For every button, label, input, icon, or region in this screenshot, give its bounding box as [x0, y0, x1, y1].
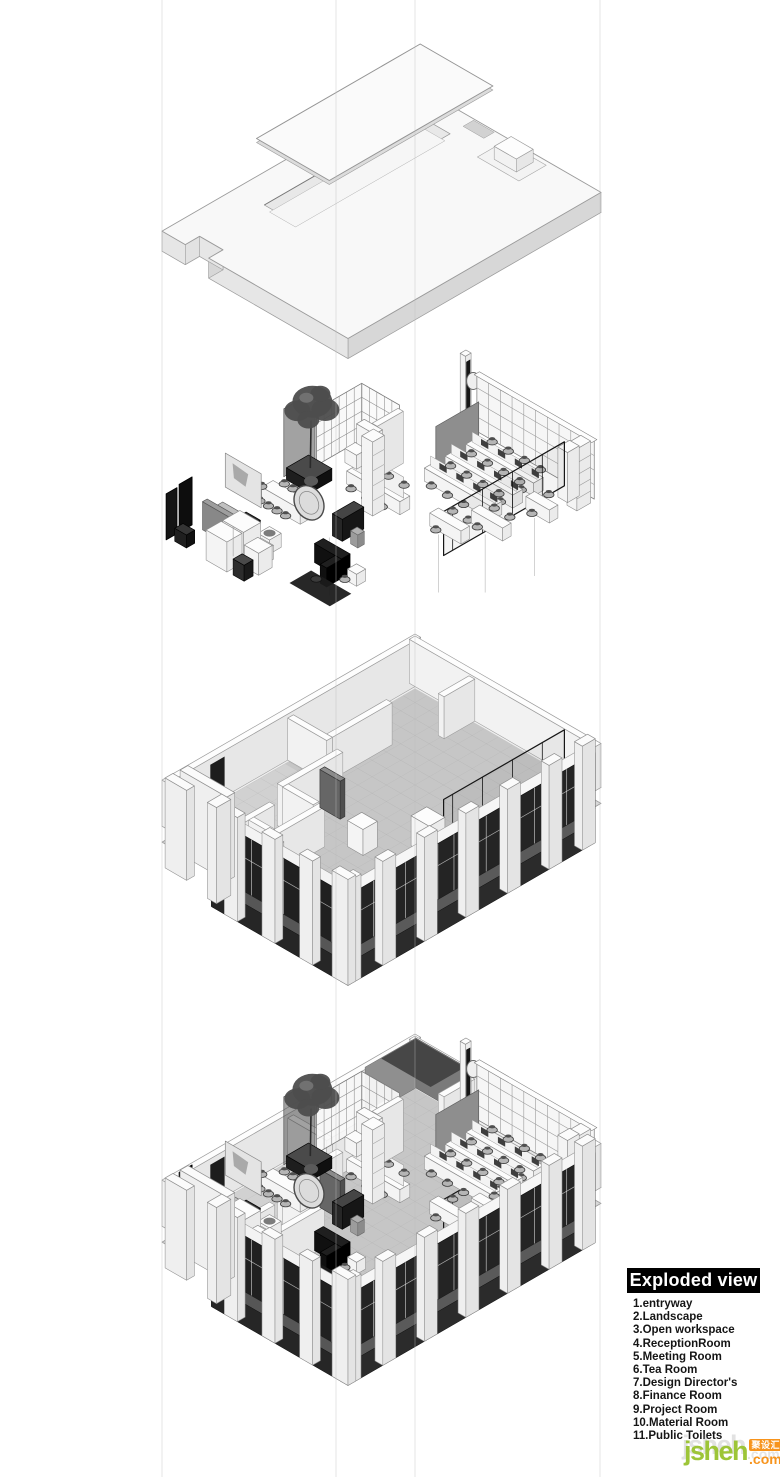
legend-item: 7.Design Director's [633, 1377, 737, 1390]
legend-item: 10.Material Room [633, 1417, 737, 1430]
legend-item: 8.Finance Room [633, 1390, 737, 1403]
roof-ceiling-plate [162, 44, 601, 359]
assembled-model [162, 1034, 601, 1386]
watermark-domain-suffix: .com [749, 1452, 780, 1466]
axonometric-scene [0, 0, 780, 1477]
legend-title: Exploded view [630, 1270, 758, 1291]
legend-item: 6.Tea Room [633, 1364, 737, 1377]
exploded-view-diagram: Exploded view 1.entryway 2.Landscape 3.O… [0, 0, 780, 1477]
legend-item: 9.Project Room [633, 1404, 737, 1417]
watermark-right-column: 聚设汇 .com [749, 1439, 780, 1466]
legend-item: 3.Open workspace [633, 1324, 737, 1337]
legend-item: 5.Meeting Room [633, 1351, 737, 1364]
legend-item: 2.Landscape [633, 1311, 737, 1324]
legend-list: 1.entryway 2.Landscape 3.Open workspace … [633, 1298, 737, 1443]
watermark-cn-badge: 聚设汇 [749, 1439, 780, 1451]
watermark-site-name: jsheh [684, 1438, 747, 1465]
legend-title-box: Exploded view [627, 1268, 760, 1293]
jsheh-logo: jsheh 聚设汇 .com [684, 1438, 780, 1466]
legend-item: 4.ReceptionRoom [633, 1338, 737, 1351]
legend-item: 1.entryway [633, 1298, 737, 1311]
floor-plan-walls [162, 634, 601, 986]
furniture-layer [166, 350, 597, 606]
